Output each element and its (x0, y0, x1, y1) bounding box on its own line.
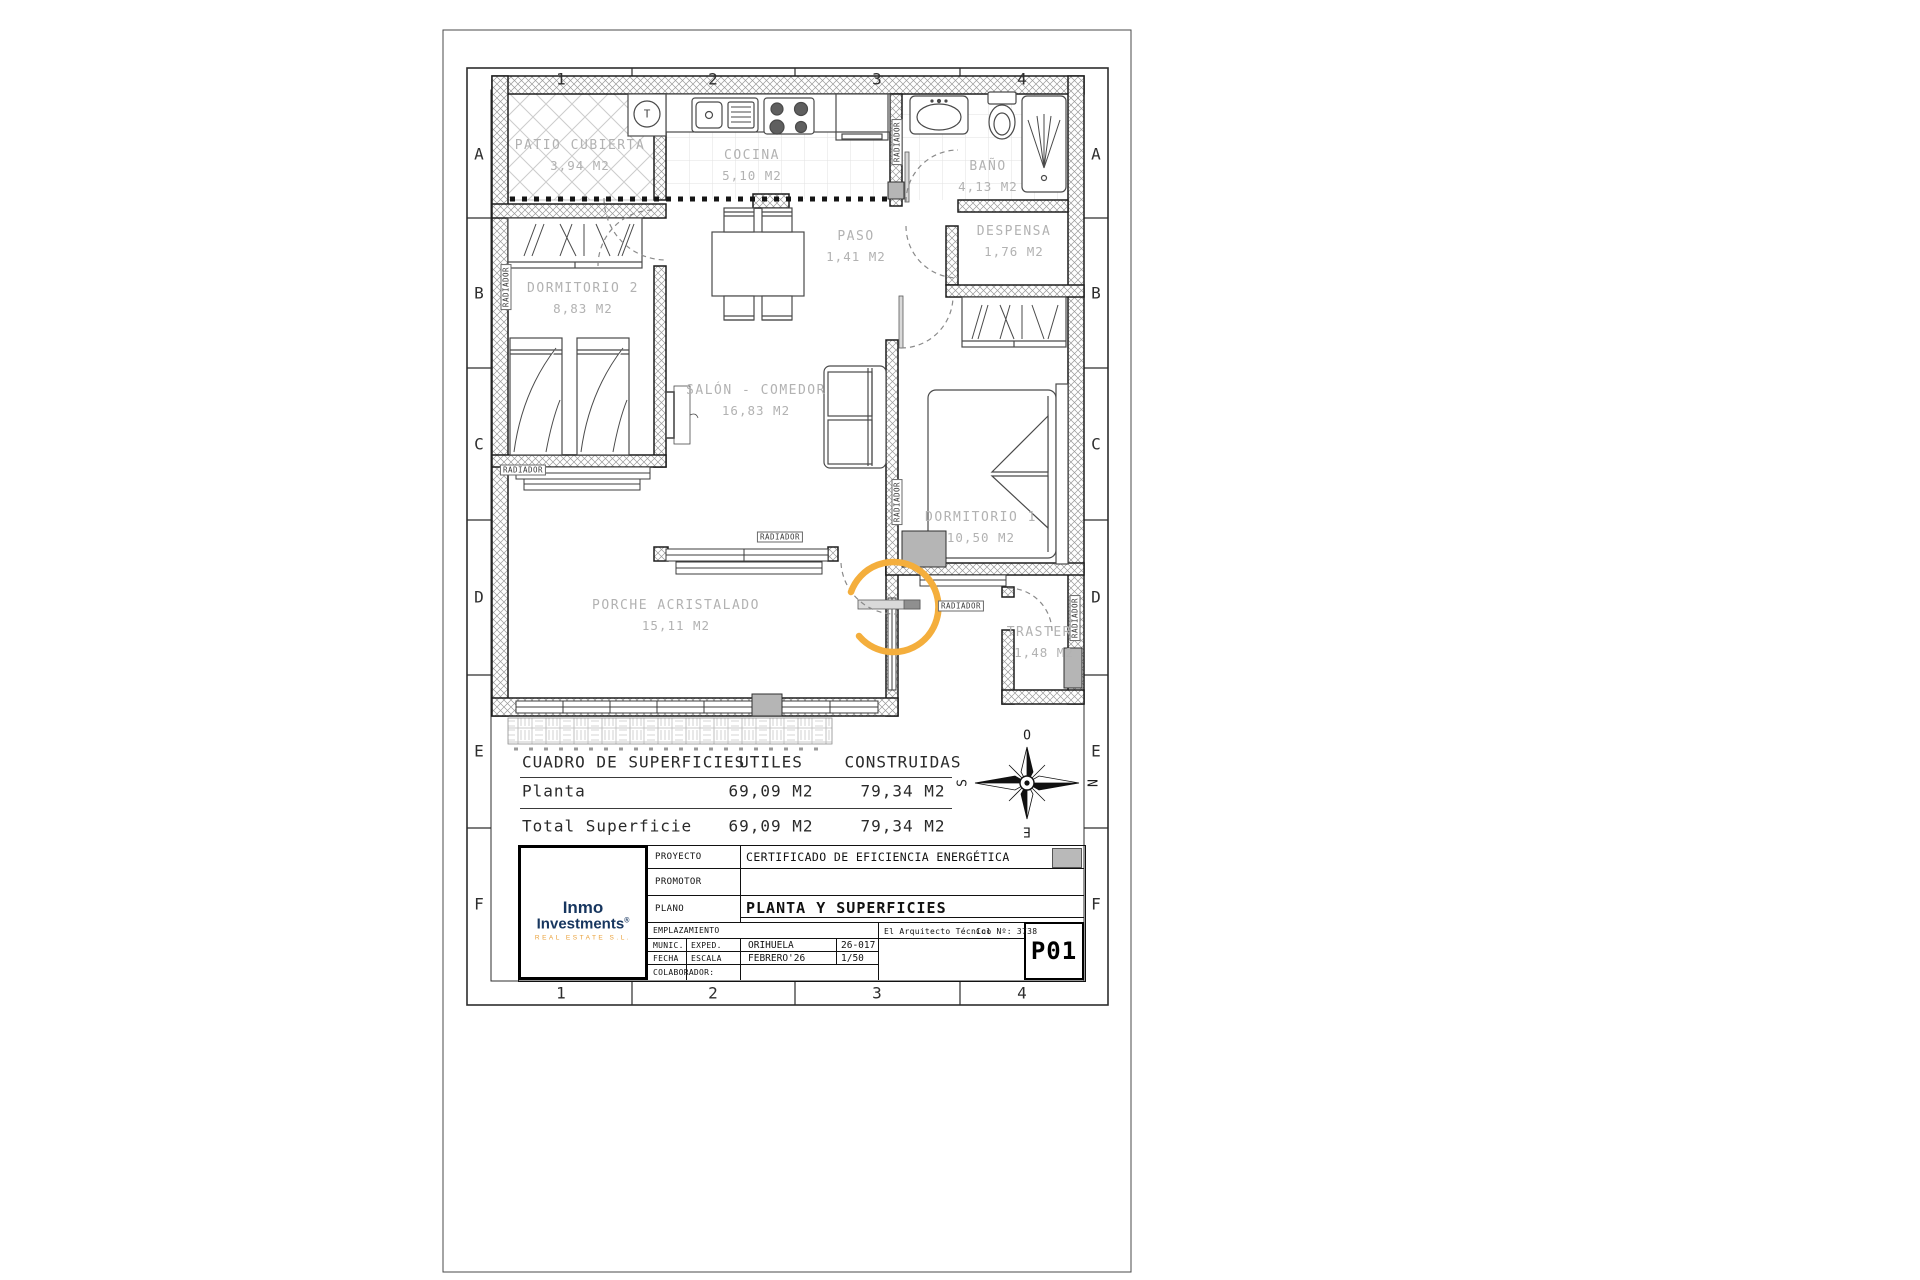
room-label-dormitorio2: DORMITORIO 2 8,83 M2 (527, 279, 639, 319)
room-area: 15,11 M2 (592, 616, 760, 636)
grid-row-label: B (1091, 284, 1101, 303)
dining-table-icon (712, 208, 804, 320)
exped-value: 26-017 (841, 940, 875, 951)
grid-row-label: C (474, 435, 484, 454)
compass-south-letter: S (956, 779, 971, 787)
shower-icon (1022, 96, 1066, 192)
bedroom2-furniture (508, 218, 642, 455)
room-name: DORMITORIO 2 (527, 281, 639, 296)
compass-rose-icon (975, 747, 1079, 819)
escala-value: 1/50 (841, 953, 864, 964)
porch-door-post (752, 694, 782, 716)
radiator-label: RADIADOR (892, 479, 903, 525)
grid-col-label: 2 (708, 70, 718, 89)
compass-north-letter: N (1084, 779, 1099, 787)
grid-col-label: 1 (556, 70, 566, 89)
table-rule (520, 777, 952, 778)
grid-col-label: 4 (1017, 70, 1027, 89)
room-label-patio: PATIO CUBIERTA 3,94 M2 (515, 136, 646, 176)
radiator-label: RADIADOR (938, 601, 984, 612)
radiator-label: RADIADOR (501, 264, 512, 310)
proyecto-label: PROYECTO (655, 852, 702, 862)
grid-row-label: D (474, 588, 484, 607)
room-name: SALÓN - COMEDOR (686, 383, 826, 398)
colegiado-number: Col Nº: 3738 (976, 927, 1037, 936)
logo-text-line2: Investments® (537, 916, 630, 933)
tb-divider (878, 922, 879, 980)
room-area: 1,48 M2 (1007, 643, 1082, 663)
surface-col-construidas: CONSTRUIDAS (845, 753, 962, 772)
surface-row-construidas: 79,34 M2 (860, 782, 945, 801)
tb-divider (740, 938, 741, 980)
radiator-label: RADIADOR (500, 465, 546, 476)
munic-label: MUNIC. (653, 941, 684, 950)
grid-row-label: F (1091, 895, 1101, 914)
room-area: 4,13 M2 (958, 177, 1018, 197)
table-rule (520, 808, 952, 809)
kitchen-sink-icon (692, 98, 758, 132)
grid-row-label: E (474, 742, 484, 761)
grid-row-label: F (474, 895, 484, 914)
bath-sink-icon (910, 96, 968, 134)
sheet-number: P01 (1031, 937, 1077, 965)
room-area: 3,94 M2 (515, 156, 646, 176)
proyecto-value: CERTIFICADO DE EFICIENCIA ENERGÉTICA (746, 850, 1010, 864)
tb-divider (648, 895, 1084, 896)
thermostat-letter: T (644, 108, 651, 121)
wardrobe2-icon (508, 218, 642, 268)
room-label-cocina: COCINA 5,10 M2 (722, 146, 782, 186)
surface-row-utiles: 69,09 M2 (728, 817, 813, 836)
fridge-icon (836, 94, 888, 140)
room-label-porche: PORCHE ACRISTALADO 15,11 M2 (592, 596, 760, 636)
room-name: PASO (837, 229, 874, 244)
munic-value: ORIHUELA (748, 940, 794, 951)
colaborador-label: COLABORADOR: (653, 968, 714, 977)
room-area: 1,76 M2 (977, 242, 1052, 262)
grid-row-label: C (1091, 435, 1101, 454)
surface-col-utiles: UTILES (739, 753, 803, 772)
exped-label: EXPED. (691, 941, 722, 950)
fecha-value: FEBRERO'26 (748, 953, 805, 964)
grid-row-label: D (1091, 588, 1101, 607)
fecha-label: FECHA (653, 954, 679, 963)
grid-col-label: 3 (872, 70, 882, 89)
surface-table-title: CUADRO DE SUPERFICIES (522, 753, 745, 772)
tb-divider (648, 868, 1084, 869)
compass-east-letter: E (1023, 824, 1031, 839)
radiator-label: RADIADOR (892, 119, 903, 165)
room-area: 16,83 M2 (686, 401, 826, 421)
room-name: DORMITORIO 1 (925, 510, 1037, 525)
tb-divider (740, 917, 1084, 918)
room-area: 1,41 M2 (826, 247, 886, 267)
compass-west-letter: O (1023, 729, 1031, 744)
grid-row-label: A (1091, 145, 1101, 164)
tb-divider (648, 922, 1084, 923)
tb-divider (740, 845, 741, 922)
toilet-icon (988, 92, 1016, 139)
radiator-label: RADIADOR (1070, 595, 1081, 641)
room-label-salon: SALÓN - COMEDOR 16,83 M2 (686, 381, 826, 421)
grid-col-label: 3 (872, 984, 882, 1003)
emplazamiento-label: EMPLAZAMIENTO (653, 926, 720, 935)
radiator-label: RADIADOR (757, 532, 803, 543)
room-label-paso: PASO 1,41 M2 (826, 227, 886, 267)
room-label-bano: BAÑO 4,13 M2 (958, 157, 1018, 197)
room-name: DESPENSA (977, 224, 1052, 239)
room-label-dormitorio1: DORMITORIO 1 10,50 M2 (925, 508, 1037, 548)
revision-gray-box (1052, 848, 1082, 868)
room-name: BAÑO (969, 159, 1006, 174)
grid-row-label: B (474, 284, 484, 303)
wardrobe1-icon (962, 297, 1066, 347)
room-name: PATIO CUBIERTA (515, 138, 646, 153)
room-name: PORCHE ACRISTALADO (592, 598, 760, 613)
grid-col-label: 4 (1017, 984, 1027, 1003)
room-label-despensa: DESPENSA 1,76 M2 (977, 222, 1052, 262)
porch-paving (508, 718, 832, 749)
sofa-icon (824, 366, 886, 468)
tb-divider (648, 951, 878, 952)
grid-col-label: 1 (556, 984, 566, 1003)
tb-divider (648, 964, 878, 965)
logo-word: Investments (537, 916, 625, 933)
room-area: 10,50 M2 (925, 528, 1037, 548)
grid-col-label: 2 (708, 984, 718, 1003)
room-area: 8,83 M2 (527, 299, 639, 319)
surface-row-construidas: 79,34 M2 (860, 817, 945, 836)
tb-divider (836, 938, 837, 964)
surface-row-label: Total Superficie (522, 817, 692, 836)
single-bed-icon (577, 338, 629, 455)
room-area: 5,10 M2 (722, 166, 782, 186)
floor-plan-sheet: { "sheet": { "grid_cols": ["1","2","3","… (0, 0, 1920, 1280)
surface-row-utiles: 69,09 M2 (728, 782, 813, 801)
plano-value: PLANTA Y SUPERFICIES (746, 899, 947, 917)
hob-icon (764, 98, 814, 134)
logo-subtitle: REAL ESTATE S.L. (535, 935, 631, 942)
escala-label: ESCALA (691, 954, 722, 963)
plano-label: PLANO (655, 904, 684, 914)
surface-row-label: Planta (522, 782, 586, 801)
room-name: COCINA (724, 148, 780, 163)
registered-mark: ® (624, 918, 629, 925)
promotor-label: PROMOTOR (655, 877, 702, 887)
grid-row-label: E (1091, 742, 1101, 761)
grid-row-label: A (474, 145, 484, 164)
single-bed-icon (510, 338, 562, 455)
